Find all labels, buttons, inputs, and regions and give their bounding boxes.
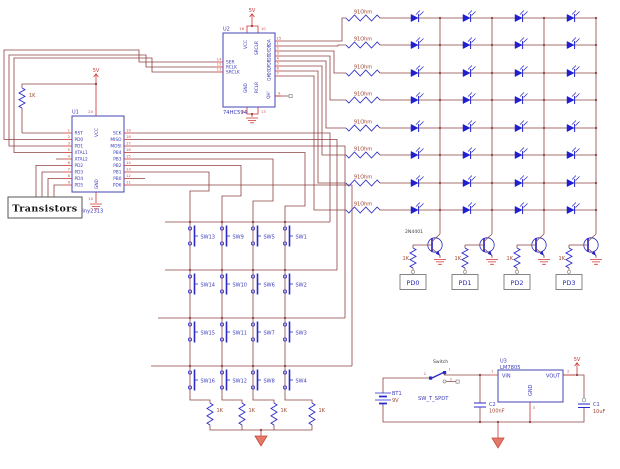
resistor-pullup[interactable]: 1K xyxy=(19,88,36,108)
emitter-arrow-icon xyxy=(540,251,544,256)
led-triangle xyxy=(463,96,470,103)
resistor-row-4[interactable] xyxy=(346,97,380,103)
label: 19 xyxy=(126,128,131,133)
led-emission-arrows-icon xyxy=(416,38,424,43)
spdt-lever[interactable] xyxy=(432,373,444,379)
junction-dot xyxy=(497,421,499,423)
led-r8c1[interactable] xyxy=(411,203,424,215)
wire-segment xyxy=(281,71,346,183)
transistor-q3[interactable] xyxy=(532,234,546,258)
junction-dot xyxy=(221,317,223,319)
label: 91Ohm xyxy=(354,10,372,16)
label: MISO xyxy=(110,137,122,143)
label: SW8 xyxy=(264,379,275,385)
label: 5V xyxy=(574,357,581,363)
spdt-throw1-contact xyxy=(443,371,446,374)
label: 7 xyxy=(277,71,280,76)
switch-sw10[interactable]: SW10 xyxy=(220,274,247,295)
led-triangle xyxy=(567,41,574,48)
led-triangle xyxy=(515,69,522,76)
label: 5V xyxy=(93,68,100,74)
junction-dot xyxy=(221,269,223,271)
u2-74hc594[interactable]: U2 74HC594 VCC SRCLR 16 10 GND RCLR 8 13… xyxy=(215,26,292,116)
label: 14 xyxy=(126,160,131,165)
u2-srclr-name: SRCLR xyxy=(254,41,260,55)
spdt-throw2-contact xyxy=(443,380,446,383)
c1-value: 10uF xyxy=(593,409,606,415)
power-flag-5v xyxy=(250,14,255,20)
led-r4c1[interactable] xyxy=(411,93,424,105)
junction-dot xyxy=(284,317,286,319)
power-section: BT1 9V Switch SW_T_SPDT 2 1 3 U3 LM7805 … xyxy=(375,359,606,416)
led-row-6: 91Ohm xyxy=(281,66,597,159)
capacitor-c2[interactable]: C2 100nF xyxy=(474,402,505,415)
resistor-symbol xyxy=(19,88,25,108)
transistor-q4[interactable] xyxy=(584,234,598,258)
label: 1K xyxy=(319,408,326,414)
led-row-5: 91Ohm xyxy=(281,61,597,132)
led-r6c1[interactable] xyxy=(411,148,424,160)
label: 1K xyxy=(455,256,462,262)
label: PB1 xyxy=(113,170,122,176)
led-triangle xyxy=(411,96,418,103)
junction-dot xyxy=(95,83,97,85)
led-row-7: 91Ohm xyxy=(281,71,597,187)
switch-sw4[interactable]: SW4 xyxy=(283,370,306,391)
label: PD4 xyxy=(75,176,84,182)
u1-ref: U1 xyxy=(72,110,79,116)
label: PD2 xyxy=(510,279,523,287)
led-emission-arrows-icon xyxy=(416,121,424,126)
wire-segment xyxy=(281,56,346,100)
led-triangle xyxy=(567,96,574,103)
led-triangle xyxy=(411,179,418,186)
led-r6c2[interactable] xyxy=(463,148,476,160)
power-flag-5v xyxy=(94,74,99,80)
spdt-nc-port-square xyxy=(456,380,459,383)
battery-bt1[interactable]: BT1 9V xyxy=(375,391,402,404)
ground-symbol xyxy=(434,260,446,265)
switch-spdt[interactable]: Switch SW_T_SPDT 2 1 3 xyxy=(418,359,459,402)
led-emission-arrows-icon xyxy=(416,148,424,153)
led-r5c1[interactable] xyxy=(411,121,424,133)
switch-sw2[interactable]: SW2 xyxy=(283,274,306,295)
u3-vin-num: 1 xyxy=(491,369,494,374)
led-triangle xyxy=(567,124,574,131)
label: PD0 xyxy=(75,137,84,143)
led-emission-arrows-icon xyxy=(416,203,424,208)
schematic-canvas: U1 ATtiny2313 VCC GND 20 10 1RST2PD03PD1… xyxy=(0,0,620,469)
net-port-square xyxy=(289,95,292,98)
schematic-drawing: U1 ATtiny2313 VCC GND 20 10 1RST2PD03PD1… xyxy=(0,0,620,469)
led-r4c2[interactable] xyxy=(463,93,476,105)
switch-sw12[interactable]: SW12 xyxy=(220,370,247,391)
label: PD2 xyxy=(75,163,84,169)
led-emission-arrows-icon xyxy=(520,148,528,153)
led-triangle xyxy=(515,14,522,21)
led-triangle xyxy=(515,179,522,186)
u2-ref: U2 xyxy=(223,27,230,33)
junction-dot xyxy=(189,317,191,319)
switch-sw1[interactable]: SW1 xyxy=(283,226,306,247)
switch-sw6[interactable]: SW6 xyxy=(251,274,274,295)
led-triangle xyxy=(463,41,470,48)
led-emission-arrows-icon xyxy=(520,176,528,181)
led-triangle xyxy=(515,206,522,213)
led-emission-arrows-icon xyxy=(572,176,580,181)
ground-flag xyxy=(492,438,504,448)
led-r1c3[interactable] xyxy=(515,11,528,23)
led-triangle xyxy=(515,96,522,103)
led-emission-arrows-icon xyxy=(468,66,476,71)
led-triangle xyxy=(567,179,574,186)
led-r7c1[interactable] xyxy=(411,176,424,188)
bt1-value: 9V xyxy=(392,398,399,404)
led-r7c4[interactable] xyxy=(567,176,580,188)
switch-sw5[interactable]: SW5 xyxy=(251,226,274,247)
resistor-base-1[interactable] xyxy=(410,248,416,268)
label: PD1 xyxy=(75,144,84,150)
led-row-2: 91Ohm xyxy=(281,37,597,50)
led-emission-arrows-icon xyxy=(572,121,580,126)
junction-dot xyxy=(189,365,191,367)
u3-vin-name: VIN xyxy=(502,374,511,380)
label: SW11 xyxy=(233,331,247,337)
capacitor-c1[interactable]: C1 10uF xyxy=(578,398,606,415)
led-r3c1[interactable] xyxy=(411,66,424,78)
label: 1 xyxy=(68,128,71,133)
led-emission-arrows-icon xyxy=(416,93,424,98)
c2-plates xyxy=(474,403,486,407)
led-triangle xyxy=(411,206,418,213)
label: SW9 xyxy=(233,235,244,241)
label: 1K xyxy=(249,408,256,414)
c2-ref: C2 xyxy=(489,402,496,408)
u2-vcc-num: 16 xyxy=(239,26,244,31)
resistor-base-3[interactable] xyxy=(514,248,520,268)
led-r5c3[interactable] xyxy=(515,121,528,133)
u3-lm7805[interactable]: U3 LM7805 VIN VOUT GND 1 2 3 xyxy=(491,359,570,411)
led-r1c4[interactable] xyxy=(567,11,580,23)
led-r2c1[interactable] xyxy=(411,38,424,50)
led-emission-arrows-icon xyxy=(520,93,528,98)
junction-dot xyxy=(284,365,286,367)
spdt-pin3: 3 xyxy=(450,377,453,382)
led-r1c1[interactable] xyxy=(411,11,424,23)
transistor-q1[interactable] xyxy=(428,234,442,258)
switch-sw13[interactable]: SW13 xyxy=(188,226,215,247)
label: SW1 xyxy=(296,235,307,241)
driver-pd1: 1KPD1 xyxy=(452,234,498,290)
label: 13 xyxy=(126,167,131,172)
junction-dot xyxy=(284,221,286,223)
led-triangle xyxy=(411,41,418,48)
label: 7 xyxy=(68,167,71,172)
led-r7c3[interactable] xyxy=(515,176,528,188)
label: SW5 xyxy=(264,235,275,241)
switch-sw14[interactable]: SW14 xyxy=(188,274,215,295)
label: 11 xyxy=(217,67,222,72)
driver-pd0: 1KPD02N4401 xyxy=(400,229,446,290)
u3-gnd-name: GND xyxy=(528,384,534,396)
led-r8c3[interactable] xyxy=(515,203,528,215)
led-triangle xyxy=(567,69,574,76)
label: 15 xyxy=(126,154,131,159)
junction-dot xyxy=(284,269,286,271)
label: SW13 xyxy=(201,235,215,241)
led-r1c2[interactable] xyxy=(463,11,476,23)
emitter-arrow-icon xyxy=(488,251,492,256)
resistor-base-2[interactable] xyxy=(462,248,468,268)
led-triangle xyxy=(515,124,522,131)
resistor-row-1[interactable] xyxy=(346,15,380,21)
switch-sw3[interactable]: SW3 xyxy=(283,322,306,343)
label: PD1 xyxy=(458,279,471,287)
label: 4 xyxy=(68,154,71,159)
label: PD3 xyxy=(75,170,84,176)
switch-sw11[interactable]: SW11 xyxy=(220,322,247,343)
junction-dot xyxy=(252,365,254,367)
c1-plates xyxy=(578,404,590,408)
label: XTAL1 xyxy=(75,150,88,156)
led-emission-arrows-icon xyxy=(416,11,424,16)
switch-label: Switch xyxy=(433,359,448,365)
port-pd1[interactable]: PD1 xyxy=(452,275,478,290)
led-emission-arrows-icon xyxy=(468,11,476,16)
port-pd0[interactable]: PD0 xyxy=(400,275,426,290)
ground-symbol xyxy=(246,118,258,123)
wire-segment xyxy=(281,66,346,155)
port-terminal xyxy=(463,270,466,273)
power-flag-5v xyxy=(575,363,580,369)
ground-symbol xyxy=(538,260,550,265)
label: SW10 xyxy=(233,283,247,289)
label: PD6 xyxy=(113,183,122,189)
label: PB2 xyxy=(113,163,122,169)
junction-dot xyxy=(479,421,481,423)
resistor-row-3[interactable] xyxy=(346,70,380,76)
led-emission-arrows-icon xyxy=(572,148,580,153)
label: SW16 xyxy=(201,379,215,385)
led-r5c4[interactable] xyxy=(567,121,580,133)
label: SW6 xyxy=(264,283,275,289)
junction-dot xyxy=(221,221,223,223)
label: 6 xyxy=(68,160,71,165)
wire-segment xyxy=(281,45,346,46)
led-row-3: 91Ohm xyxy=(281,51,597,77)
led-r3c3[interactable] xyxy=(515,66,528,78)
junction-dot xyxy=(189,269,191,271)
label: PD5 xyxy=(75,183,84,189)
label: 9 xyxy=(68,180,71,185)
resistor-row-6[interactable] xyxy=(346,152,380,158)
led-emission-arrows-icon xyxy=(572,38,580,43)
label: MOSI xyxy=(110,144,121,150)
driver-pd3: 1KPD3 xyxy=(556,234,602,290)
led-emission-arrows-icon xyxy=(520,66,528,71)
u1-vcc-name: VCC xyxy=(94,128,100,137)
ground-flag xyxy=(255,436,267,446)
label: 16 xyxy=(126,147,131,152)
led-r3c4[interactable] xyxy=(567,66,580,78)
junction-dot xyxy=(260,429,262,431)
led-r4c4[interactable] xyxy=(567,93,580,105)
label: PB3 xyxy=(113,157,122,163)
junction-dot xyxy=(189,221,191,223)
label: 1K xyxy=(507,256,514,262)
label: PB0 xyxy=(113,176,122,182)
port-terminal xyxy=(515,270,518,273)
port-terminal xyxy=(567,270,570,273)
led-emission-arrows-icon xyxy=(572,11,580,16)
switch-sw15[interactable]: SW15 xyxy=(188,322,215,343)
resistor-pulldown-2[interactable] xyxy=(239,403,245,425)
u2-vcc-name: VCC xyxy=(243,40,249,49)
wire-segment xyxy=(281,18,346,41)
led-r2c4[interactable] xyxy=(567,38,580,50)
port-pd2[interactable]: PD2 xyxy=(504,275,530,290)
label: 2N4401 xyxy=(405,229,423,235)
ground-symbol xyxy=(486,260,498,265)
label: PB4 xyxy=(113,150,122,156)
label: 5 xyxy=(68,147,71,152)
label: 91Ohm xyxy=(354,147,372,153)
led-triangle xyxy=(463,151,470,158)
label: 1K xyxy=(217,408,224,414)
led-r6c4[interactable] xyxy=(567,148,580,160)
resistor-pulldown-4[interactable] xyxy=(309,403,315,425)
u2-qh2-name: QH' xyxy=(266,91,272,99)
led-triangle xyxy=(463,124,470,131)
u2-rclr-name: RCLR xyxy=(254,82,260,93)
wire-segment xyxy=(281,51,346,73)
led-r2c2[interactable] xyxy=(463,38,476,50)
label: RST xyxy=(75,131,84,137)
u2-rclr-num: 13 xyxy=(261,109,266,114)
label: QH xyxy=(267,74,273,81)
label: SW14 xyxy=(201,283,215,289)
resistor-base-4[interactable] xyxy=(566,248,572,268)
led-r7c2[interactable] xyxy=(463,176,476,188)
led-emission-arrows-icon xyxy=(520,121,528,126)
resistor-row-5[interactable] xyxy=(346,125,380,131)
port-terminal xyxy=(411,270,414,273)
led-r2c3[interactable] xyxy=(515,38,528,50)
label: 17 xyxy=(126,141,131,146)
label: 18 xyxy=(126,134,131,139)
u1-gnd-num: 10 xyxy=(88,196,93,201)
label: SW3 xyxy=(296,331,307,337)
led-emission-arrows-icon xyxy=(572,66,580,71)
u2-srclr-num: 10 xyxy=(261,26,266,31)
junction-dot xyxy=(252,317,254,319)
led-triangle xyxy=(411,69,418,76)
label: 11 xyxy=(126,180,131,185)
junction-dot xyxy=(252,221,254,223)
ground-symbol xyxy=(590,260,602,265)
c1-terminal xyxy=(582,398,586,402)
led-emission-arrows-icon xyxy=(520,11,528,16)
led-emission-arrows-icon xyxy=(468,93,476,98)
label: SW15 xyxy=(201,331,215,337)
junction-dot xyxy=(529,421,531,423)
led-emission-arrows-icon xyxy=(468,203,476,208)
led-triangle xyxy=(515,41,522,48)
label: 91Ohm xyxy=(354,120,372,126)
switch-sw9[interactable]: SW9 xyxy=(220,226,243,247)
led-r3c2[interactable] xyxy=(463,66,476,78)
led-emission-arrows-icon xyxy=(468,176,476,181)
transistor-q2[interactable] xyxy=(480,234,494,258)
led-emission-arrows-icon xyxy=(416,176,424,181)
label: SCK xyxy=(113,131,122,137)
transistors-label: Transistors xyxy=(12,204,77,215)
switch-sw7[interactable]: SW7 xyxy=(251,322,274,343)
led-r8c4[interactable] xyxy=(567,203,580,215)
bt1-ref: BT1 xyxy=(392,391,402,397)
resistor-row-8[interactable] xyxy=(346,207,380,213)
led-triangle xyxy=(567,206,574,213)
led-r6c3[interactable] xyxy=(515,148,528,160)
switch-sw16[interactable]: SW16 xyxy=(188,370,215,391)
resistor-pulldown-3[interactable] xyxy=(271,403,277,425)
label: SW2 xyxy=(296,283,307,289)
label: PD0 xyxy=(406,279,419,287)
led-row-8: 91Ohm xyxy=(281,76,597,214)
label: 3 xyxy=(68,141,71,146)
label: 2 xyxy=(68,134,71,139)
led-emission-arrows-icon xyxy=(520,38,528,43)
switch-part: SW_T_SPDT xyxy=(418,396,449,402)
led-emission-arrows-icon xyxy=(468,148,476,153)
spdt-pole-contact xyxy=(429,377,432,380)
resistor-pulldown-1[interactable] xyxy=(207,403,213,425)
driver-pd2: 1KPD2 xyxy=(504,234,550,290)
transistors-label-box: Transistors xyxy=(8,197,82,218)
junction-dot xyxy=(576,374,578,376)
emitter-arrow-icon xyxy=(436,251,440,256)
label: 91Ohm xyxy=(354,202,372,208)
u2-gnd-name: GND xyxy=(243,82,249,93)
junction-dot xyxy=(221,365,223,367)
label: SRCLK xyxy=(226,70,240,76)
led-triangle xyxy=(463,206,470,213)
led-r5c2[interactable] xyxy=(463,121,476,133)
emitter-arrow-icon xyxy=(592,251,596,256)
led-triangle xyxy=(515,151,522,158)
u2-part: 74HC594 xyxy=(223,110,248,116)
junction-dot xyxy=(479,374,481,376)
label: 91Ohm xyxy=(354,37,372,43)
led-triangle xyxy=(463,14,470,21)
led-emission-arrows-icon xyxy=(468,121,476,126)
led-r8c2[interactable] xyxy=(463,203,476,215)
wire-segment xyxy=(281,76,346,210)
switch-sw8[interactable]: SW8 xyxy=(251,370,274,391)
label: 91Ohm xyxy=(354,92,372,98)
led-triangle xyxy=(411,14,418,21)
label: 1K xyxy=(281,408,288,414)
c1-ref: C1 xyxy=(593,402,600,408)
resistor-row-2[interactable] xyxy=(346,42,380,48)
led-r4c3[interactable] xyxy=(515,93,528,105)
led-emission-arrows-icon xyxy=(468,38,476,43)
led-emission-arrows-icon xyxy=(572,93,580,98)
port-pd3[interactable]: PD3 xyxy=(556,275,582,290)
u3-vout-name: VOUT xyxy=(546,374,561,380)
u1-gnd-name: GND xyxy=(94,178,100,189)
led-emission-arrows-icon xyxy=(572,203,580,208)
